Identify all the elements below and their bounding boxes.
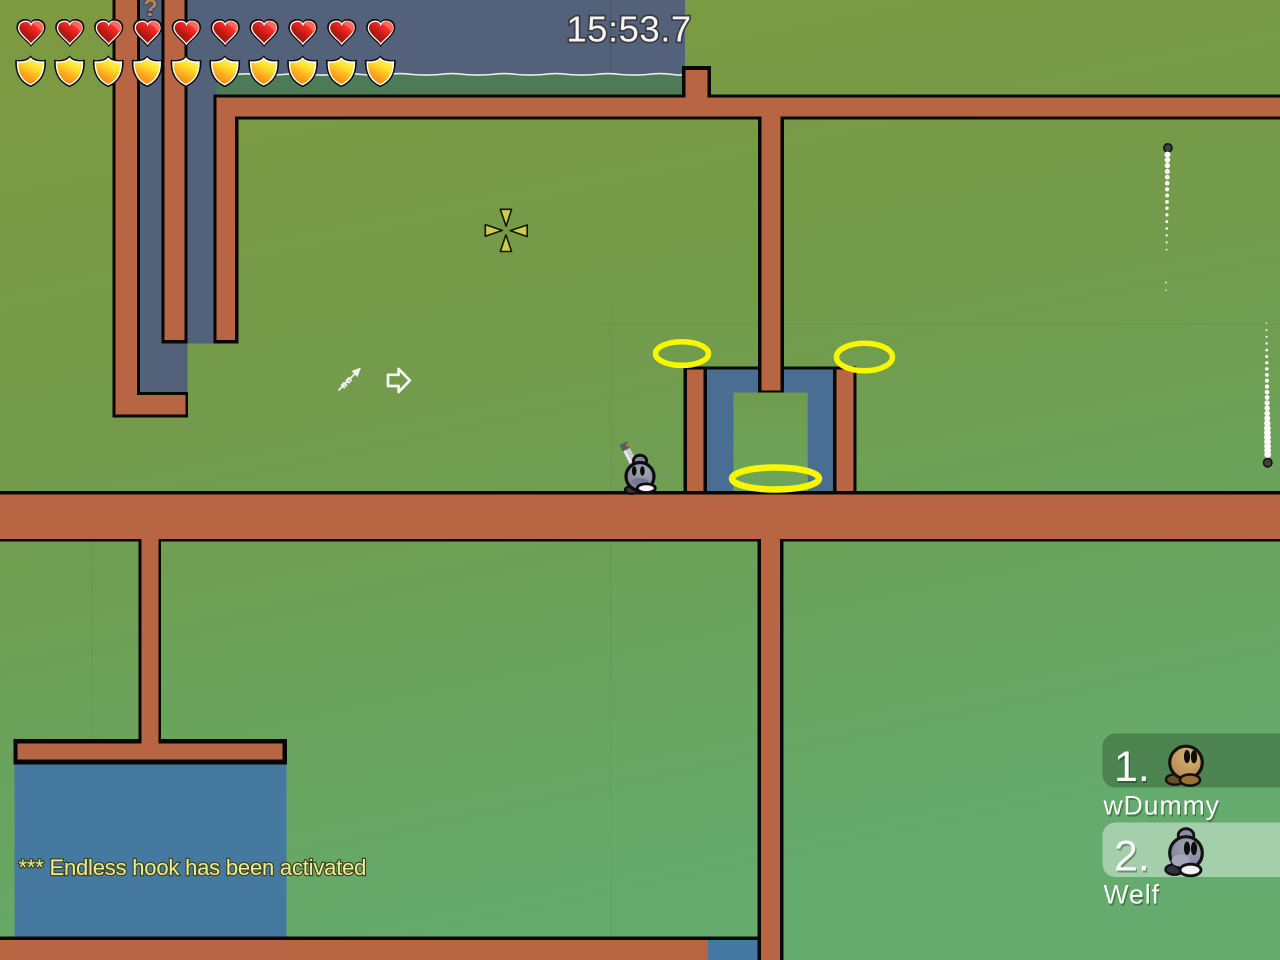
- svg-text:1.: 1.: [1114, 743, 1150, 791]
- svg-text:*** Endless hook has been acti: *** Endless hook has been activated: [19, 855, 367, 880]
- svg-text:?: ?: [143, 0, 158, 22]
- svg-text:wDummy: wDummy: [1103, 791, 1220, 821]
- svg-text:15:53.7: 15:53.7: [566, 9, 691, 50]
- svg-text:2.: 2.: [1114, 833, 1150, 881]
- svg-text:Welf: Welf: [1104, 880, 1161, 910]
